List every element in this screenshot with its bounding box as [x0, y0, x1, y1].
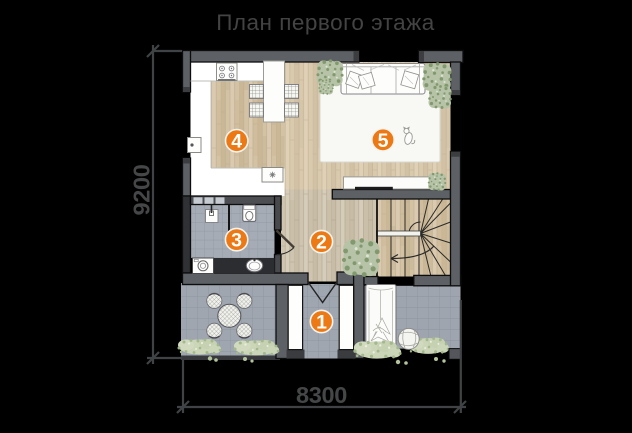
svg-text:4: 4 [231, 131, 242, 153]
svg-text:3: 3 [231, 230, 242, 252]
svg-text:5: 5 [378, 130, 389, 152]
svg-text:8300: 8300 [296, 382, 347, 408]
svg-text:9200: 9200 [129, 164, 155, 215]
svg-text:1: 1 [316, 312, 327, 334]
svg-text:План первого этажа: План первого этажа [216, 10, 435, 35]
svg-text:2: 2 [316, 232, 327, 254]
